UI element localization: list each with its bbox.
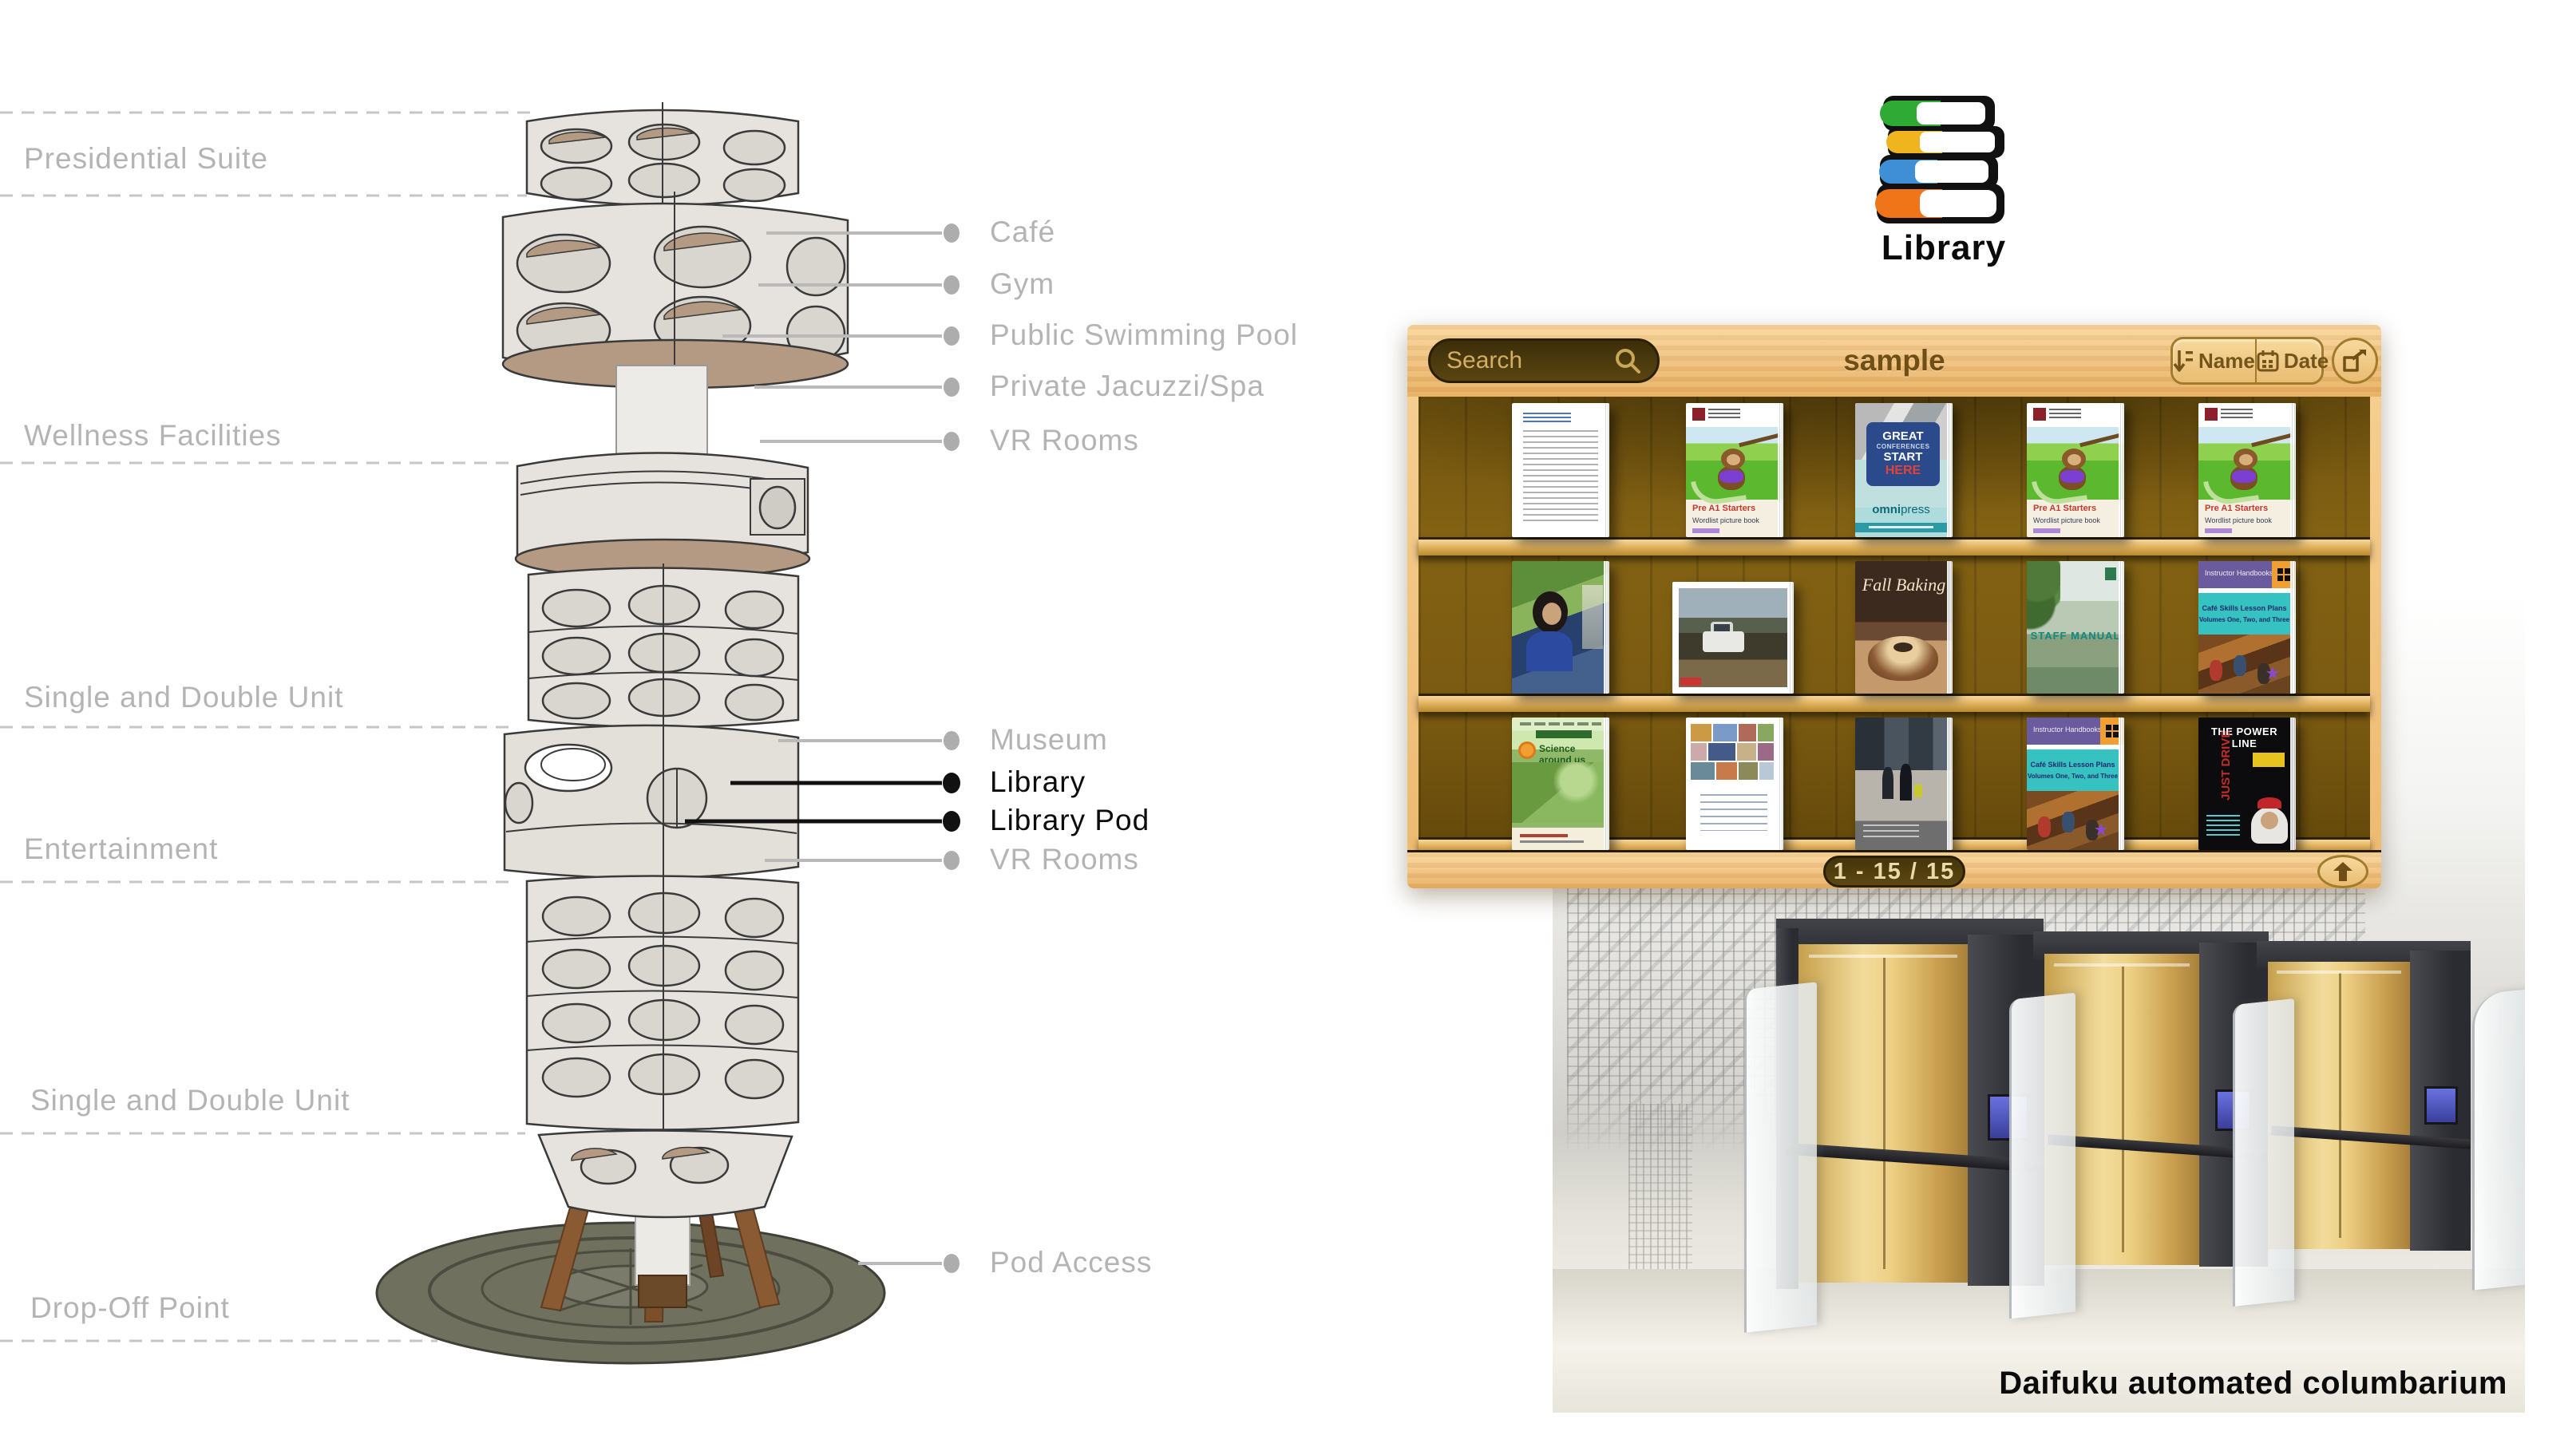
cafe-figure xyxy=(2086,820,2099,840)
caption-lines xyxy=(1700,794,1767,831)
pedestrian xyxy=(1882,767,1893,799)
label-pod-access: Pod Access xyxy=(990,1246,1152,1279)
up-arrow-icon xyxy=(2331,860,2355,883)
label-vr-rooms-1: VR Rooms xyxy=(990,424,1139,457)
book-stack-icon xyxy=(1875,94,2012,227)
book-photo-people[interactable] xyxy=(1512,561,1609,694)
shelf-board-2 xyxy=(1419,694,2370,712)
sort-date-label: Date xyxy=(2284,349,2329,374)
book-title: Pre A1 Starters xyxy=(2033,504,2096,513)
brand-light: press xyxy=(1901,503,1930,516)
glass-divider xyxy=(2233,998,2294,1307)
module-cafe-gym xyxy=(503,192,848,388)
tower-legs xyxy=(541,1141,779,1322)
label-jacuzzi-spa: Private Jacuzzi/Spa xyxy=(990,370,1264,403)
label-museum: Museum xyxy=(990,723,1108,757)
booth-gold-doors xyxy=(1798,944,1968,1283)
drop-off-base xyxy=(377,1223,884,1363)
document-header-lines xyxy=(1523,413,1571,424)
library-callout: Library xyxy=(1868,94,2020,268)
window-panes-icon xyxy=(2106,725,2119,737)
branch-art xyxy=(1739,433,1780,446)
pedestrian xyxy=(1900,764,1912,801)
logo-text-lines xyxy=(1708,409,1740,420)
book-the-power-line[interactable]: THE POWER LINE JUST DRIVE xyxy=(2198,718,2296,850)
book-subtitle: Wordlist picture book xyxy=(2033,516,2100,524)
monkey-shirt-art xyxy=(2232,470,2256,483)
cake-hole-art xyxy=(1893,642,1913,652)
handbook-line2: Volumes One, Two, and Three xyxy=(2199,616,2289,623)
label-wellness-facilities: Wellness Facilities xyxy=(24,419,282,453)
cafe-figure xyxy=(2234,655,2246,676)
green-banner xyxy=(1536,730,1592,738)
module-museum-library xyxy=(505,718,798,886)
book-street-photo[interactable] xyxy=(1855,718,1953,850)
book-staff-manual[interactable]: STAFF MANUAL xyxy=(2027,561,2124,694)
document-body-lines xyxy=(1523,430,1598,523)
handbook-header-text: Instructor Handbooks xyxy=(2033,726,2102,733)
collage-grid xyxy=(1691,724,1774,781)
sort-by-name-button[interactable]: Name xyxy=(2173,339,2255,382)
label-library-pod: Library Pod xyxy=(990,804,1150,837)
cambridge-logo xyxy=(2033,408,2046,421)
book-pre-a1-starters[interactable]: Pre A1 Starters Wordlist picture book xyxy=(2198,403,2296,537)
callout-dots-gray xyxy=(944,223,960,1273)
handbook-header-text: Instructor Handbooks xyxy=(2205,569,2273,577)
label-single-double-unit-2: Single and Double Unit xyxy=(30,1084,350,1117)
book-footer-mark xyxy=(2205,528,2232,533)
cambridge-logo xyxy=(1692,408,1705,421)
red-logo xyxy=(1680,678,1701,686)
label-vr-rooms-2: VR Rooms xyxy=(990,843,1139,876)
cafe-figure xyxy=(2210,660,2222,681)
footer-band xyxy=(1512,828,1604,850)
pagination-text: 1 - 15 / 15 xyxy=(1834,859,1956,885)
label-presidential-suite: Presidential Suite xyxy=(24,142,268,176)
book-title: STAFF MANUAL xyxy=(2027,630,2124,642)
photo-face xyxy=(1542,603,1561,625)
glass-divider xyxy=(2472,989,2525,1290)
trees-art xyxy=(2027,561,2060,633)
share-button[interactable] xyxy=(2332,338,2378,384)
tower-shaft xyxy=(616,366,707,485)
monkey-face-art xyxy=(2239,454,2253,465)
teal-text-lines xyxy=(2206,815,2240,839)
book-footer-mark xyxy=(1692,528,1719,533)
cafe-photo xyxy=(2198,635,2290,694)
cafe-figure xyxy=(2038,816,2051,837)
cambridge-logo xyxy=(2205,408,2218,421)
sort-by-date-button[interactable]: Date xyxy=(2255,339,2329,382)
cafe-photo xyxy=(2027,791,2119,850)
truck-body xyxy=(1703,631,1744,652)
logo-text-lines xyxy=(2049,409,2081,420)
book-photo-truck[interactable] xyxy=(1672,582,1794,694)
monkey-shirt-art xyxy=(1719,470,1743,483)
book-instructor-handbook[interactable]: Instructor Handbooks Café Skills Lesson … xyxy=(2027,718,2124,850)
label-cafe: Café xyxy=(990,215,1055,249)
book-photo-collage[interactable] xyxy=(1686,718,1783,850)
buildings-art xyxy=(1855,718,1953,770)
label-pool: Public Swimming Pool xyxy=(990,318,1298,352)
brand-bold: omni xyxy=(1872,503,1901,516)
handbook-line1: Café Skills Lesson Plans xyxy=(2030,761,2115,769)
sort-name-icon xyxy=(2173,349,2194,373)
label-entertainment: Entertainment xyxy=(24,832,218,866)
handbook-teal-box: Café Skills Lesson Plans Volumes One, Tw… xyxy=(2198,593,2290,635)
book-subtitle: Wordlist picture book xyxy=(2205,516,2272,524)
label-single-double-unit-1: Single and Double Unit xyxy=(24,681,343,714)
module-units-lower xyxy=(527,873,798,1133)
library-callout-label: Library xyxy=(1868,228,2020,268)
pagination-badge: 1 - 15 / 15 xyxy=(1823,856,1965,888)
app-footer: 1 - 15 / 15 xyxy=(1407,850,2381,888)
red-headline: JUST DRIVE xyxy=(2219,764,2270,801)
monkey-face-art xyxy=(1727,454,1740,465)
glass-divider xyxy=(2009,993,2075,1319)
callout-lines-black xyxy=(685,783,942,821)
sort-control: Name Date xyxy=(2170,337,2324,385)
photo-accent xyxy=(1582,585,1603,649)
truck-window xyxy=(1714,624,1730,631)
monkey-shirt-art xyxy=(2060,470,2084,483)
bubble-line: HERE xyxy=(1886,464,1921,478)
footer-band xyxy=(1855,523,1947,532)
label-library: Library xyxy=(990,765,1086,799)
bubble-line: GREAT xyxy=(1882,430,1923,444)
label-gym: Gym xyxy=(990,267,1055,301)
omnipress-logo: omnipress xyxy=(1855,503,1947,516)
book-document[interactable] xyxy=(1512,403,1609,537)
cafe-figure xyxy=(2062,812,2075,832)
branch-art xyxy=(2079,433,2121,446)
glass-divider xyxy=(1744,982,1817,1333)
scroll-top-button[interactable] xyxy=(2317,855,2368,888)
santa-hat-art xyxy=(2257,797,2281,809)
module-units-upper xyxy=(528,563,798,731)
logo-text-lines xyxy=(2221,409,2253,420)
page-canvas: Presidential Suite Wellness Facilities S… xyxy=(0,0,2576,1455)
calendar-icon xyxy=(2257,350,2279,372)
book-footer-mark xyxy=(2033,528,2060,533)
share-icon xyxy=(2341,348,2368,374)
module-wellness xyxy=(516,453,809,578)
luggage xyxy=(1914,785,1922,797)
library-app-window: Search sample Name xyxy=(1407,325,2381,888)
book-title: Pre A1 Starters xyxy=(1692,504,1755,513)
label-drop-off-point: Drop-Off Point xyxy=(30,1291,230,1325)
caption-lines xyxy=(1863,824,1919,839)
level-dashed-lines xyxy=(0,113,533,1341)
callout-dots-black xyxy=(943,773,960,832)
handbook-line1: Café Skills Lesson Plans xyxy=(2202,604,2286,612)
shelf-board-1 xyxy=(1419,537,2370,556)
sort-name-label: Name xyxy=(2198,349,2255,374)
child-face-art xyxy=(2261,812,2278,829)
book-pre-a1-starters[interactable]: Pre A1 Starters Wordlist picture book xyxy=(2027,403,2124,537)
book-great-conferences[interactable]: GREAT CONFERENCES START HERE omnipress xyxy=(1855,403,1953,537)
bird-photo xyxy=(1512,762,1604,823)
module-presidential xyxy=(527,102,798,214)
render-caption: Daifuku automated columbarium xyxy=(1999,1366,2507,1402)
bubble-line: START xyxy=(1884,451,1923,465)
book-pre-a1-starters[interactable]: Pre A1 Starters Wordlist picture book xyxy=(1686,403,1783,537)
photo-shirt xyxy=(1526,631,1573,671)
kiosk-screen xyxy=(2424,1086,2458,1125)
book-subtitle: Wordlist picture book xyxy=(1692,516,1759,524)
tower-diagram-graphic xyxy=(0,0,1078,1455)
sun-logo xyxy=(1518,741,1536,759)
book-title: THE POWER LINE xyxy=(2198,726,2290,749)
cafe-figure xyxy=(2257,663,2270,684)
handbook-line2: Volumes One, Two, and Three xyxy=(2028,773,2118,780)
branch-art xyxy=(2251,433,2293,446)
module-taper xyxy=(539,1130,792,1217)
book-title: Pre A1 Starters xyxy=(2205,504,2268,513)
book-science-around-us[interactable]: Science around us xyxy=(1512,718,1609,850)
callout-lines-gray xyxy=(722,233,942,1263)
header-text-line xyxy=(1520,722,1601,726)
book-instructor-handbook[interactable]: Instructor Handbooks Café Skills Lesson … xyxy=(2198,561,2296,694)
window-panes-icon xyxy=(2277,568,2290,581)
book-fall-baking[interactable]: Fall Baking xyxy=(1855,561,1953,694)
handbook-teal-box: Café Skills Lesson Plans Volumes One, Tw… xyxy=(2027,749,2119,791)
speech-bubble: GREAT CONFERENCES START HERE xyxy=(1866,422,1940,486)
crest-logo xyxy=(2105,567,2116,580)
monkey-face-art xyxy=(2068,454,2081,465)
book-title: Fall Baking xyxy=(1855,575,1953,594)
